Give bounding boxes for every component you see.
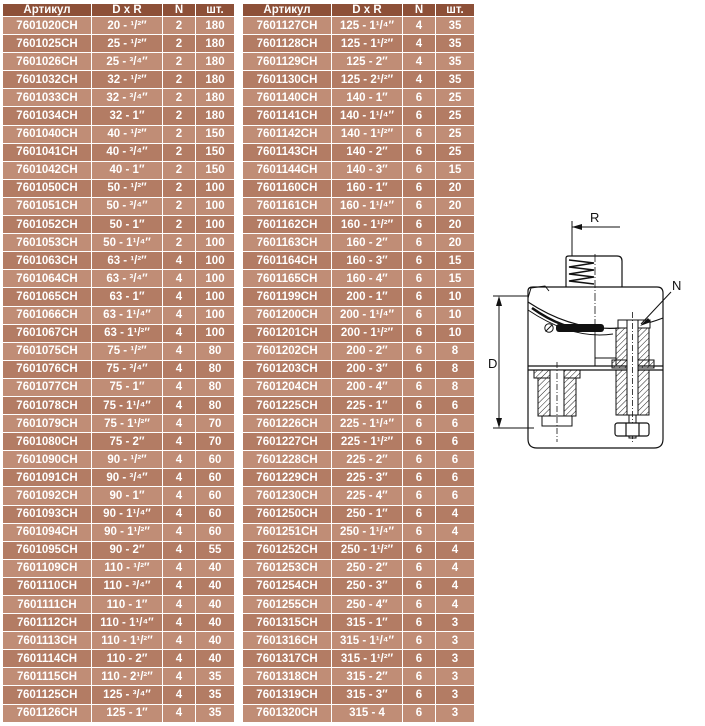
cell-qty: 60 — [196, 506, 234, 523]
cell-dxr: 140 - 1″ — [332, 89, 402, 106]
cell-n: 6 — [403, 415, 435, 432]
cell-n: 4 — [163, 307, 195, 324]
cell-qty: 4 — [436, 524, 474, 541]
table-row: 7601255CH250 - 4″64 — [243, 596, 474, 613]
cell-article: 7601140CH — [243, 89, 331, 106]
cell-qty: 60 — [196, 469, 234, 486]
cell-qty: 100 — [196, 325, 234, 342]
cell-qty: 40 — [196, 560, 234, 577]
cell-n: 6 — [403, 325, 435, 342]
cell-n: 2 — [163, 107, 195, 124]
table-row: 7601141CH140 - 1¹/⁴″625 — [243, 107, 474, 124]
cell-dxr: 63 - 1¹/²″ — [92, 325, 162, 342]
cell-qty: 3 — [436, 705, 474, 722]
cell-article: 7601203CH — [243, 361, 331, 378]
table-row: 7601127CH125 - 1¹/⁴″435 — [243, 17, 474, 34]
cell-dxr: 40 - ³/⁴″ — [92, 144, 162, 161]
table-row: 7601319CH315 - 3″63 — [243, 686, 474, 703]
cell-n: 4 — [163, 596, 195, 613]
cell-qty: 15 — [436, 162, 474, 179]
dimension-r: R — [572, 210, 620, 256]
cell-article: 7601317CH — [243, 650, 331, 667]
cell-dxr: 25 - ³/⁴″ — [92, 53, 162, 70]
table-row: 7601090CH90 - ¹/²″460 — [3, 451, 234, 468]
cell-article: 7601025CH — [3, 35, 91, 52]
cell-dxr: 225 - 2″ — [332, 451, 402, 468]
cell-qty: 3 — [436, 632, 474, 649]
cell-dxr: 75 - 1″ — [92, 379, 162, 396]
cell-n: 4 — [403, 17, 435, 34]
cell-dxr: 140 - 3″ — [332, 162, 402, 179]
cell-article: 7601161CH — [243, 198, 331, 215]
cell-article: 7601201CH — [243, 325, 331, 342]
cell-article: 7601078CH — [3, 397, 91, 414]
cell-n: 4 — [163, 650, 195, 667]
cell-dxr: 315 - 1″ — [332, 614, 402, 631]
cell-n: 6 — [403, 234, 435, 251]
cell-qty: 100 — [196, 270, 234, 287]
cell-article: 7601064CH — [3, 270, 91, 287]
cell-dxr: 90 - ³/⁴″ — [92, 469, 162, 486]
table-row: 7601032CH32 - ¹/²″2180 — [3, 71, 234, 88]
table-row: 7601114CH110 - 2″440 — [3, 650, 234, 667]
cell-n: 6 — [403, 451, 435, 468]
cell-qty: 180 — [196, 35, 234, 52]
cell-qty: 100 — [196, 252, 234, 269]
cell-article: 7601067CH — [3, 325, 91, 342]
cell-n: 4 — [163, 506, 195, 523]
cell-qty: 15 — [436, 270, 474, 287]
column-header-n: N — [163, 4, 195, 16]
saddle-clamp-cross-section-diagram: R N D — [488, 210, 705, 460]
cell-dxr: 250 - 3″ — [332, 578, 402, 595]
cell-article: 7601127CH — [243, 17, 331, 34]
cell-article: 7601080CH — [3, 433, 91, 450]
catalog-page: Артикул D x R N шт. 7601020CH20 - ¹/²″21… — [0, 0, 705, 726]
cell-qty: 25 — [436, 144, 474, 161]
cell-dxr: 315 - 2″ — [332, 668, 402, 685]
cell-n: 4 — [163, 343, 195, 360]
cell-article: 7601095CH — [3, 542, 91, 559]
cell-article: 7601129CH — [243, 53, 331, 70]
cell-article: 7601079CH — [3, 415, 91, 432]
cell-article: 7601076CH — [3, 361, 91, 378]
cell-article: 7601040CH — [3, 126, 91, 143]
cell-qty: 20 — [436, 234, 474, 251]
cell-article: 7601253CH — [243, 560, 331, 577]
table-row: 7601200CH200 - 1¹/⁴″610 — [243, 307, 474, 324]
cell-n: 6 — [403, 560, 435, 577]
cell-qty: 8 — [436, 361, 474, 378]
table-row: 7601025CH25 - ¹/²″2180 — [3, 35, 234, 52]
cell-n: 4 — [163, 542, 195, 559]
cell-dxr: 125 - 2¹/²″ — [332, 71, 402, 88]
table-row: 7601094CH90 - 1¹/²″460 — [3, 524, 234, 541]
cell-n: 4 — [163, 469, 195, 486]
table-row: 7601112CH110 - 1¹/⁴″440 — [3, 614, 234, 631]
cell-article: 7601315CH — [243, 614, 331, 631]
cell-dxr: 315 - 3″ — [332, 686, 402, 703]
cell-dxr: 50 - 1″ — [92, 216, 162, 233]
table-row: 7601318CH315 - 2″63 — [243, 668, 474, 685]
cell-article: 7601163CH — [243, 234, 331, 251]
cell-qty: 150 — [196, 162, 234, 179]
cell-article: 7601125CH — [3, 686, 91, 703]
table-row: 7601160CH160 - 1″620 — [243, 180, 474, 197]
cell-article: 7601114CH — [3, 650, 91, 667]
cell-n: 4 — [163, 705, 195, 722]
cell-dxr: 110 - ³/⁴″ — [92, 578, 162, 595]
cell-qty: 20 — [436, 180, 474, 197]
cell-article: 7601112CH — [3, 614, 91, 631]
cell-n: 6 — [403, 252, 435, 269]
table-row: 7601053CH50 - 1¹/⁴″2100 — [3, 234, 234, 251]
cell-dxr: 75 - ³/⁴″ — [92, 361, 162, 378]
cell-qty: 180 — [196, 107, 234, 124]
cell-article: 7601320CH — [243, 705, 331, 722]
table-row: 7601163CH160 - 2″620 — [243, 234, 474, 251]
table-row: 7601067CH63 - 1¹/²″4100 — [3, 325, 234, 342]
cell-article: 7601227CH — [243, 433, 331, 450]
cell-qty: 4 — [436, 560, 474, 577]
cell-article: 7601255CH — [243, 596, 331, 613]
table-row: 7601227CH225 - 1¹/²″66 — [243, 433, 474, 450]
cell-n: 4 — [163, 433, 195, 450]
cell-dxr: 160 - 3″ — [332, 252, 402, 269]
cell-qty: 6 — [436, 415, 474, 432]
dim-label-n: N — [672, 278, 681, 293]
cell-qty: 35 — [436, 53, 474, 70]
table-row: 7601204CH200 - 4″68 — [243, 379, 474, 396]
cell-qty: 35 — [436, 17, 474, 34]
column-header-qty: шт. — [436, 4, 474, 16]
cell-dxr: 125 - 1″ — [92, 705, 162, 722]
cell-article: 7601225CH — [243, 397, 331, 414]
table-row: 7601130CH125 - 2¹/²″435 — [243, 71, 474, 88]
table-row: 7601092CH90 - 1″460 — [3, 487, 234, 504]
cell-n: 6 — [403, 126, 435, 143]
cell-qty: 60 — [196, 524, 234, 541]
cell-dxr: 90 - 1″ — [92, 487, 162, 504]
cell-n: 4 — [163, 451, 195, 468]
cell-n: 6 — [403, 198, 435, 215]
cell-n: 2 — [163, 162, 195, 179]
cell-n: 6 — [403, 469, 435, 486]
cell-dxr: 90 - 1¹/⁴″ — [92, 506, 162, 523]
cell-article: 7601111CH — [3, 596, 91, 613]
cell-qty: 4 — [436, 542, 474, 559]
cell-dxr: 110 - ¹/²″ — [92, 560, 162, 577]
cell-n: 2 — [163, 234, 195, 251]
table-row: 7601066CH63 - 1¹/⁴″4100 — [3, 307, 234, 324]
cell-article: 7601020CH — [3, 17, 91, 34]
cell-article: 7601252CH — [243, 542, 331, 559]
cell-n: 6 — [403, 524, 435, 541]
left-product-table: Артикул D x R N шт. 7601020CH20 - ¹/²″21… — [2, 3, 235, 723]
cell-dxr: 225 - 3″ — [332, 469, 402, 486]
cell-n: 4 — [403, 53, 435, 70]
cell-n: 6 — [403, 433, 435, 450]
cell-qty: 3 — [436, 668, 474, 685]
cell-qty: 6 — [436, 397, 474, 414]
cell-article: 7601318CH — [243, 668, 331, 685]
cell-article: 7601142CH — [243, 126, 331, 143]
cell-dxr: 63 - 1″ — [92, 288, 162, 305]
cell-qty: 35 — [196, 686, 234, 703]
cell-n: 4 — [403, 35, 435, 52]
cell-n: 4 — [163, 686, 195, 703]
cell-dxr: 125 - 2″ — [332, 53, 402, 70]
cell-dxr: 75 - 1¹/²″ — [92, 415, 162, 432]
table-row: 7601254CH250 - 3″64 — [243, 578, 474, 595]
cell-n: 6 — [403, 162, 435, 179]
left-table-header-row: Артикул D x R N шт. — [3, 4, 234, 16]
table-row: 7601143CH140 - 2″625 — [243, 144, 474, 161]
cell-dxr: 200 - 3″ — [332, 361, 402, 378]
cell-qty: 40 — [196, 650, 234, 667]
table-row: 7601250CH250 - 1″64 — [243, 506, 474, 523]
cell-qty: 6 — [436, 469, 474, 486]
cell-qty: 35 — [436, 35, 474, 52]
column-header-dxr: D x R — [92, 4, 162, 16]
cell-n: 6 — [403, 397, 435, 414]
cell-n: 4 — [163, 614, 195, 631]
cell-article: 7601026CH — [3, 53, 91, 70]
cell-n: 6 — [403, 686, 435, 703]
table-row: 7601041CH40 - ³/⁴″2150 — [3, 144, 234, 161]
column-header-qty: шт. — [196, 4, 234, 16]
cell-dxr: 125 - ³/⁴″ — [92, 686, 162, 703]
cell-article: 7601144CH — [243, 162, 331, 179]
cell-n: 4 — [163, 487, 195, 504]
cell-article: 7601034CH — [3, 107, 91, 124]
cell-article: 7601204CH — [243, 379, 331, 396]
cell-dxr: 160 - 1¹/²″ — [332, 216, 402, 233]
table-row: 7601251CH250 - 1¹/⁴″64 — [243, 524, 474, 541]
cell-n: 4 — [163, 270, 195, 287]
cell-dxr: 50 - ³/⁴″ — [92, 198, 162, 215]
cell-dxr: 90 - 1¹/²″ — [92, 524, 162, 541]
table-row: 7601115CH110 - 2¹/²″435 — [3, 668, 234, 685]
cell-article: 7601094CH — [3, 524, 91, 541]
cell-dxr: 25 - ¹/²″ — [92, 35, 162, 52]
cell-n: 4 — [163, 415, 195, 432]
cell-article: 7601077CH — [3, 379, 91, 396]
cell-article: 7601165CH — [243, 270, 331, 287]
column-header-article: Артикул — [243, 4, 331, 16]
cell-article: 7601164CH — [243, 252, 331, 269]
cell-dxr: 20 - ¹/²″ — [92, 17, 162, 34]
cell-dxr: 50 - ¹/²″ — [92, 180, 162, 197]
cell-article: 7601090CH — [3, 451, 91, 468]
cell-n: 2 — [163, 53, 195, 70]
cell-qty: 100 — [196, 288, 234, 305]
table-row: 7601065CH63 - 1″4100 — [3, 288, 234, 305]
table-row: 7601201CH200 - 1¹/²″610 — [243, 325, 474, 342]
cell-qty: 40 — [196, 596, 234, 613]
table-row: 7601225CH225 - 1″66 — [243, 397, 474, 414]
cell-dxr: 75 - 1¹/⁴″ — [92, 397, 162, 414]
cell-dxr: 110 - 2″ — [92, 650, 162, 667]
cell-article: 7601113CH — [3, 632, 91, 649]
cell-n: 6 — [403, 107, 435, 124]
cell-qty: 100 — [196, 198, 234, 215]
cell-article: 7601316CH — [243, 632, 331, 649]
cell-dxr: 90 - 2″ — [92, 542, 162, 559]
cell-qty: 70 — [196, 415, 234, 432]
cell-n: 2 — [163, 180, 195, 197]
cross-section-drawing: R N D — [488, 210, 705, 460]
cell-qty: 25 — [436, 89, 474, 106]
cell-n: 6 — [403, 542, 435, 559]
cell-dxr: 315 - 4 — [332, 705, 402, 722]
cell-dxr: 110 - 1¹/⁴″ — [92, 614, 162, 631]
table-row: 7601076CH75 - ³/⁴″480 — [3, 361, 234, 378]
cell-qty: 20 — [436, 198, 474, 215]
cell-qty: 35 — [196, 705, 234, 722]
cell-article: 7601254CH — [243, 578, 331, 595]
cell-n: 4 — [163, 632, 195, 649]
cell-article: 7601052CH — [3, 216, 91, 233]
cell-dxr: 50 - 1¹/⁴″ — [92, 234, 162, 251]
cell-article: 7601091CH — [3, 469, 91, 486]
cell-n: 4 — [163, 379, 195, 396]
cell-n: 4 — [163, 397, 195, 414]
table-row: 7601129CH125 - 2″435 — [243, 53, 474, 70]
cell-n: 2 — [163, 198, 195, 215]
cell-qty: 60 — [196, 487, 234, 504]
table-row: 7601144CH140 - 3″615 — [243, 162, 474, 179]
table-row: 7601051CH50 - ³/⁴″2100 — [3, 198, 234, 215]
cell-n: 6 — [403, 361, 435, 378]
table-row: 7601093CH90 - 1¹/⁴″460 — [3, 506, 234, 523]
table-row: 7601202CH200 - 2″68 — [243, 343, 474, 360]
cell-qty: 80 — [196, 379, 234, 396]
cell-n: 6 — [403, 596, 435, 613]
cell-n: 6 — [403, 650, 435, 667]
cell-dxr: 160 - 2″ — [332, 234, 402, 251]
cell-dxr: 315 - 1¹/⁴″ — [332, 632, 402, 649]
table-row: 7601113CH110 - 1¹/²″440 — [3, 632, 234, 649]
cell-article: 7601251CH — [243, 524, 331, 541]
cell-dxr: 110 - 1″ — [92, 596, 162, 613]
cell-article: 7601115CH — [3, 668, 91, 685]
table-row: 7601109CH110 - ¹/²″440 — [3, 560, 234, 577]
table-row: 7601230CH225 - 4″66 — [243, 487, 474, 504]
cell-n: 6 — [403, 578, 435, 595]
table-row: 7601063CH63 - ¹/²″4100 — [3, 252, 234, 269]
cell-dxr: 32 - 1″ — [92, 107, 162, 124]
cell-qty: 20 — [436, 216, 474, 233]
cell-n: 6 — [403, 668, 435, 685]
cell-qty: 80 — [196, 343, 234, 360]
cell-n: 4 — [163, 288, 195, 305]
cell-article: 7601230CH — [243, 487, 331, 504]
cell-article: 7601126CH — [3, 705, 91, 722]
cell-dxr: 200 - 1¹/⁴″ — [332, 307, 402, 324]
cell-dxr: 110 - 2¹/²″ — [92, 668, 162, 685]
cell-article: 7601200CH — [243, 307, 331, 324]
cell-article: 7601042CH — [3, 162, 91, 179]
right-table-header-row: Артикул D x R N шт. — [243, 4, 474, 16]
cell-article: 7601050CH — [3, 180, 91, 197]
cell-n: 4 — [163, 252, 195, 269]
cell-n: 6 — [403, 144, 435, 161]
table-row: 7601316CH315 - 1¹/⁴″63 — [243, 632, 474, 649]
table-row: 7601165CH160 - 4″615 — [243, 270, 474, 287]
cell-dxr: 40 - 1″ — [92, 162, 162, 179]
table-row: 7601095CH90 - 2″455 — [3, 542, 234, 559]
cell-n: 2 — [163, 17, 195, 34]
table-row: 7601077CH75 - 1″480 — [3, 379, 234, 396]
cell-qty: 100 — [196, 307, 234, 324]
cell-n: 2 — [163, 216, 195, 233]
cell-qty: 60 — [196, 451, 234, 468]
cell-dxr: 110 - 1¹/²″ — [92, 632, 162, 649]
table-row: 7601064CH63 - ³/⁴″4100 — [3, 270, 234, 287]
cell-article: 7601092CH — [3, 487, 91, 504]
cell-qty: 40 — [196, 632, 234, 649]
cell-dxr: 250 - 1¹/⁴″ — [332, 524, 402, 541]
cell-article: 7601093CH — [3, 506, 91, 523]
cell-qty: 10 — [436, 307, 474, 324]
cell-qty: 180 — [196, 71, 234, 88]
cell-n: 6 — [403, 614, 435, 631]
cell-qty: 10 — [436, 325, 474, 342]
cell-qty: 180 — [196, 17, 234, 34]
cell-article: 7601053CH — [3, 234, 91, 251]
table-row: 7601252CH250 - 1¹/²″64 — [243, 542, 474, 559]
cell-dxr: 140 - 1¹/²″ — [332, 126, 402, 143]
cell-article: 7601063CH — [3, 252, 91, 269]
cell-n: 4 — [163, 361, 195, 378]
cell-dxr: 200 - 4″ — [332, 379, 402, 396]
cell-article: 7601075CH — [3, 343, 91, 360]
cell-qty: 40 — [196, 614, 234, 631]
cell-qty: 3 — [436, 686, 474, 703]
cell-article: 7601109CH — [3, 560, 91, 577]
cell-n: 6 — [403, 307, 435, 324]
cell-qty: 100 — [196, 180, 234, 197]
cell-qty: 150 — [196, 144, 234, 161]
table-row: 7601110CH110 - ³/⁴″440 — [3, 578, 234, 595]
table-row: 7601075CH75 - ¹/²″480 — [3, 343, 234, 360]
table-row: 7601315CH315 - 1″63 — [243, 614, 474, 631]
table-row: 7601320CH315 - 463 — [243, 705, 474, 722]
cell-qty: 25 — [436, 126, 474, 143]
table-row: 7601079CH75 - 1¹/²″470 — [3, 415, 234, 432]
cell-dxr: 250 - 1¹/²″ — [332, 542, 402, 559]
cell-qty: 150 — [196, 126, 234, 143]
table-row: 7601078CH75 - 1¹/⁴″480 — [3, 397, 234, 414]
cell-article: 7601229CH — [243, 469, 331, 486]
cell-article: 7601319CH — [243, 686, 331, 703]
cell-n: 6 — [403, 487, 435, 504]
table-row: 7601026CH25 - ³/⁴″2180 — [3, 53, 234, 70]
cell-n: 6 — [403, 379, 435, 396]
cell-qty: 55 — [196, 542, 234, 559]
cell-n: 6 — [403, 270, 435, 287]
cell-dxr: 200 - 1″ — [332, 288, 402, 305]
table-row: 7601020CH20 - ¹/²″2180 — [3, 17, 234, 34]
cell-n: 6 — [403, 216, 435, 233]
cell-dxr: 225 - 1¹/⁴″ — [332, 415, 402, 432]
cell-dxr: 140 - 1¹/⁴″ — [332, 107, 402, 124]
cell-qty: 100 — [196, 234, 234, 251]
table-row: 7601034CH32 - 1″2180 — [3, 107, 234, 124]
cell-dxr: 125 - 1¹/²″ — [332, 35, 402, 52]
cell-dxr: 140 - 2″ — [332, 144, 402, 161]
